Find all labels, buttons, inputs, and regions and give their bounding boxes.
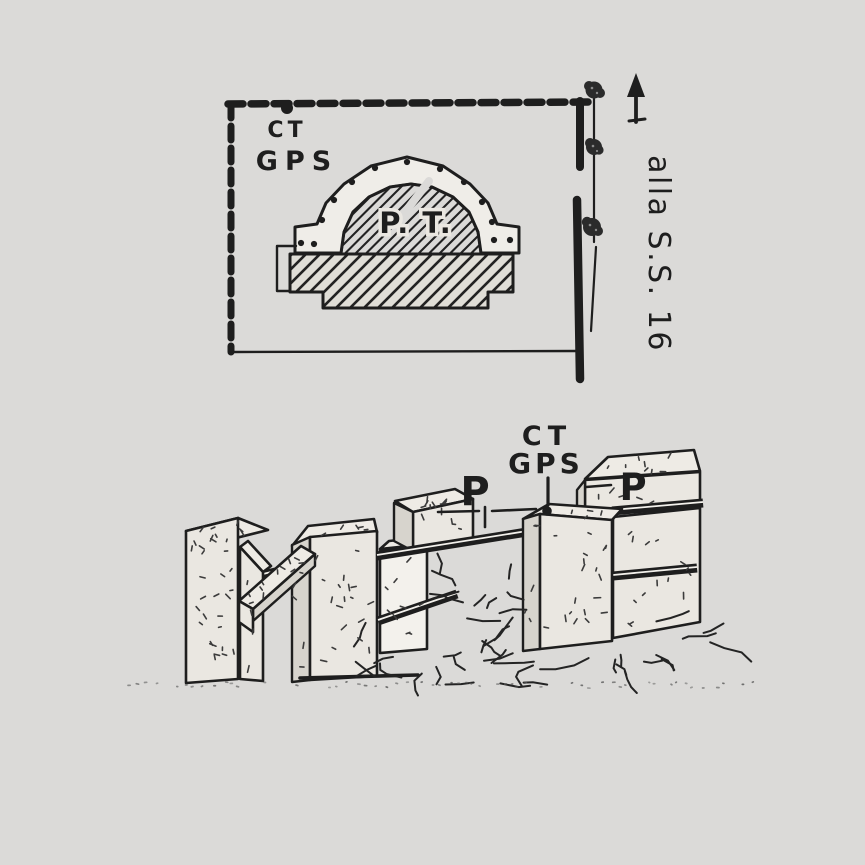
- hedge-line-lower: [591, 247, 596, 331]
- left-pier-label: P: [460, 469, 489, 515]
- plan-label-gps: GPS: [256, 146, 338, 177]
- ground-speckle-line: [128, 682, 753, 688]
- center-panel-face: [380, 545, 427, 653]
- plan-view: CT GPS P. T.: [228, 73, 676, 379]
- hand-drawn-survey-sketch: CT GPS P. T.: [0, 0, 865, 865]
- plan-boundary-right-lower-wall: [577, 200, 580, 379]
- bush-icon: [582, 217, 603, 236]
- monument-base-slab-hatched: [290, 254, 513, 308]
- direction-arrow-icon: [627, 73, 645, 122]
- road-direction-label: alla S.S. 16: [641, 155, 676, 353]
- sketch-canvas: CT GPS P. T.: [0, 0, 865, 865]
- monument-label-pt: P. T.: [379, 206, 452, 240]
- iso-label-gps: GPS: [508, 447, 584, 480]
- plan-boundary-top-dashed: [228, 102, 588, 104]
- bush-icon: [584, 81, 605, 99]
- plan-survey-point-dot: [281, 102, 293, 114]
- central-pier-side-face: [523, 514, 540, 651]
- iso-survey-point-dot: [542, 506, 552, 516]
- bush-icon: [585, 138, 604, 155]
- pier-a-front-face: [186, 518, 238, 683]
- plan-boundary-bottom-line: [233, 351, 577, 352]
- central-pier-front-face: [540, 514, 612, 649]
- right-pier-label: P: [619, 466, 646, 509]
- slab-b-front-face: [310, 531, 377, 680]
- beam-e-end-face: [394, 503, 413, 551]
- plan-label-ct: CT: [267, 118, 306, 143]
- iso-view: P CT GPS P: [128, 421, 753, 696]
